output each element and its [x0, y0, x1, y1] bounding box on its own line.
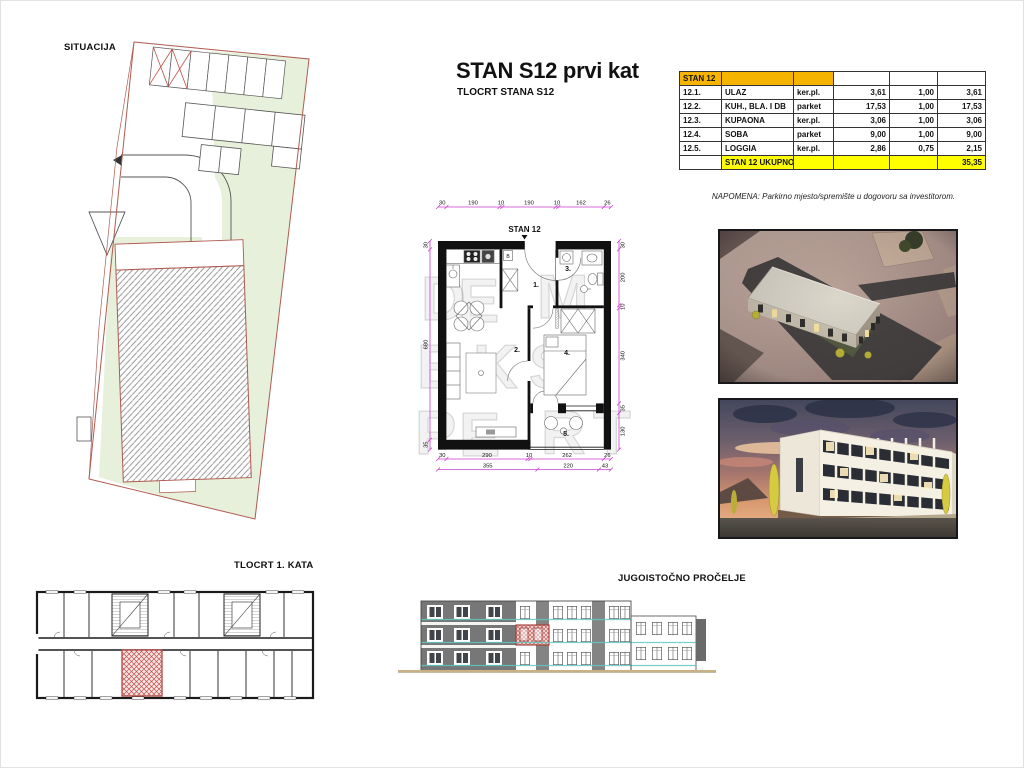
highlighted-unit-s12 — [122, 650, 162, 696]
site-plan — [59, 27, 324, 542]
table-cell: 12.2. — [680, 100, 722, 114]
table-cell: 1,00 — [890, 100, 938, 114]
svg-text:5.: 5. — [563, 431, 569, 438]
svg-text:10: 10 — [526, 453, 532, 459]
render-street-image — [720, 400, 956, 537]
svg-text:355: 355 — [483, 464, 493, 470]
table-cell: 1,00 — [890, 114, 938, 128]
svg-text:340: 340 — [621, 351, 627, 361]
table-cell: 12.3. — [680, 114, 722, 128]
table-cell: 0,75 — [890, 142, 938, 156]
table-cell: ker.pl. — [794, 114, 834, 128]
table-cell: parket — [794, 128, 834, 142]
page-title: STAN S12 prvi kat — [456, 58, 639, 84]
drawing-sheet: D E M E K S P E R T SITUACIJA — [0, 0, 1024, 768]
entrance-opening — [36, 634, 39, 654]
table-cell — [722, 72, 794, 86]
furniture — [446, 249, 603, 437]
shaft — [556, 308, 559, 328]
svg-text:30: 30 — [439, 453, 445, 459]
svg-text:2.: 2. — [514, 347, 520, 354]
wing — [631, 616, 706, 671]
svg-text:35: 35 — [424, 441, 430, 447]
svg-text:130: 130 — [621, 427, 627, 437]
table-cell: 2,15 — [938, 142, 986, 156]
table-cell — [834, 156, 890, 170]
floor-plan-name: STAN 12 — [508, 225, 541, 234]
table-cell: SOBA — [722, 128, 794, 142]
svg-text:30: 30 — [621, 242, 627, 248]
render-aerial-image — [720, 231, 956, 382]
svg-text:35: 35 — [621, 405, 627, 411]
floor-plan: 30 190 10 190 10 162 26 30 680 35 30 200… — [416, 193, 646, 493]
table-cell: 3,06 — [834, 114, 890, 128]
table-header-row: STAN 12 — [680, 72, 986, 86]
svg-text:30: 30 — [424, 242, 430, 248]
svg-text:680: 680 — [424, 340, 430, 350]
table-row: 12.4. SOBA parket 9,00 1,00 9,00 — [680, 128, 986, 142]
table-cell: 17,53 — [938, 100, 986, 114]
table-cell: 2,86 — [834, 142, 890, 156]
svg-text:190: 190 — [524, 201, 534, 207]
table-cell: 12.4. — [680, 128, 722, 142]
render-street — [718, 398, 958, 539]
svg-text:43: 43 — [602, 464, 608, 470]
table-cell: parket — [794, 100, 834, 114]
entrance-marker — [522, 235, 528, 240]
site-building-footprint — [115, 240, 252, 494]
stair-core — [224, 594, 260, 636]
site-small-structure — [77, 417, 91, 441]
area-table: STAN 12 12.1. ULAZ ker.pl. 3,61 1,00 3,6… — [679, 71, 986, 170]
table-cell: STAN 12 UKUPNO: — [722, 156, 794, 170]
table-cell: 12.5. — [680, 142, 722, 156]
svg-text:220: 220 — [563, 464, 573, 470]
svg-text:162: 162 — [576, 201, 586, 207]
elevation-southeast — [396, 589, 718, 681]
table-cell — [890, 156, 938, 170]
table-row: 12.2. KUH., BLA. I DB parket 17,53 1,00 … — [680, 100, 986, 114]
table-cell — [938, 72, 986, 86]
stair-core — [112, 594, 148, 636]
svg-text:26: 26 — [604, 453, 610, 459]
procelje-label: JUGOISTOČNO PROČELJE — [618, 573, 746, 584]
table-cell — [890, 72, 938, 86]
table-cell: KUH., BLA. I DB — [722, 100, 794, 114]
table-cell: STAN 12 — [680, 72, 722, 86]
table-cell: ker.pl. — [794, 86, 834, 100]
tlocrt-kata-label: TLOCRT 1. KATA — [234, 560, 314, 571]
svg-text:3.: 3. — [565, 266, 571, 273]
svg-text:10: 10 — [554, 201, 560, 207]
page-subtitle: TLOCRT STANA S12 — [457, 87, 554, 98]
loggia-railing — [530, 406, 603, 450]
table-cell: 3,61 — [834, 86, 890, 100]
table-cell — [680, 156, 722, 170]
render-aerial — [718, 229, 958, 384]
svg-text:26: 26 — [604, 201, 610, 207]
svg-text:190: 190 — [468, 201, 478, 207]
dark-end-cap — [696, 619, 706, 661]
table-total-row: STAN 12 UKUPNO: 35,35 — [680, 156, 986, 170]
svg-text:200: 200 — [621, 273, 627, 283]
dark-section-windows — [427, 605, 502, 665]
gray-pilaster — [592, 601, 605, 671]
table-cell: 3,61 — [938, 86, 986, 100]
svg-text:1.: 1. — [533, 282, 539, 289]
table-cell — [834, 72, 890, 86]
svg-text:10: 10 — [498, 201, 504, 207]
svg-text:4.: 4. — [564, 350, 570, 357]
svg-text:262: 262 — [562, 453, 572, 459]
ground-line — [398, 670, 716, 673]
table-row: 12.5. LOGGIA ker.pl. 2,86 0,75 2,15 — [680, 142, 986, 156]
table-row: 12.1. ULAZ ker.pl. 3,61 1,00 3,61 — [680, 86, 986, 100]
table-cell: LOGGIA — [722, 142, 794, 156]
table-cell: 9,00 — [834, 128, 890, 142]
table-cell: 35,35 — [938, 156, 986, 170]
napomena-note: NAPOMENA: Parkirno mjesto/spremište u do… — [691, 192, 976, 201]
svg-text:30: 30 — [439, 201, 445, 207]
table-cell: 1,00 — [890, 128, 938, 142]
dimension-texts: 30 190 10 190 10 162 26 30 680 35 30 200… — [424, 201, 627, 470]
table-cell: ULAZ — [722, 86, 794, 100]
table-cell: 9,00 — [938, 128, 986, 142]
table-cell: KUPAONA — [722, 114, 794, 128]
table-cell — [794, 72, 834, 86]
table-cell — [794, 156, 834, 170]
table-cell: 12.1. — [680, 86, 722, 100]
table-cell: 3,06 — [938, 114, 986, 128]
table-row: 12.3. KUPAONA ker.pl. 3,06 1,00 3,06 — [680, 114, 986, 128]
svg-text:10: 10 — [621, 304, 627, 310]
table-cell: ker.pl. — [794, 142, 834, 156]
floor-plan-level1 — [34, 584, 316, 704]
table-cell: 17,53 — [834, 100, 890, 114]
table-cell: 1,00 — [890, 86, 938, 100]
svg-text:290: 290 — [482, 453, 492, 459]
